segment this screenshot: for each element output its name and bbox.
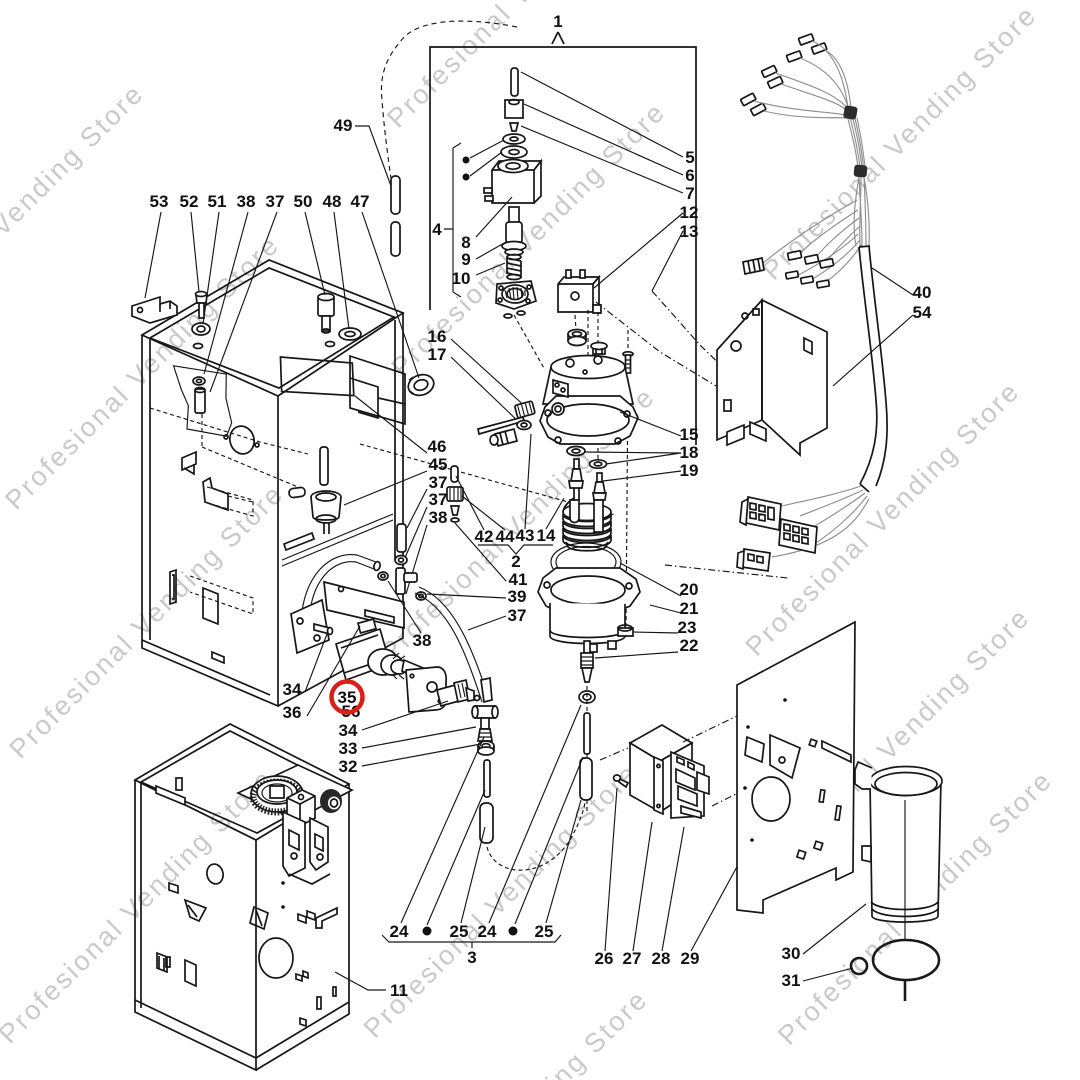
svg-text:36: 36 xyxy=(283,703,302,722)
svg-text:27: 27 xyxy=(623,949,642,968)
svg-text:21: 21 xyxy=(680,599,699,618)
svg-text:38: 38 xyxy=(429,508,448,527)
svg-text:3: 3 xyxy=(467,948,476,967)
svg-text:39: 39 xyxy=(508,587,527,606)
svg-text:25: 25 xyxy=(535,922,554,941)
svg-text:49: 49 xyxy=(334,116,353,135)
svg-text:25: 25 xyxy=(450,922,469,941)
svg-text:29: 29 xyxy=(681,949,700,968)
svg-text:54: 54 xyxy=(913,303,932,322)
svg-text:34: 34 xyxy=(283,680,302,699)
svg-text:6: 6 xyxy=(685,166,694,185)
svg-text:37: 37 xyxy=(266,192,285,211)
svg-text:34: 34 xyxy=(339,721,358,740)
svg-text:45: 45 xyxy=(429,455,448,474)
svg-text:16: 16 xyxy=(428,327,447,346)
svg-text:13: 13 xyxy=(680,222,699,241)
svg-text:40: 40 xyxy=(913,283,932,302)
svg-text:38: 38 xyxy=(413,631,432,650)
svg-text:11: 11 xyxy=(390,981,408,1000)
svg-text:47: 47 xyxy=(351,192,370,211)
svg-text:50: 50 xyxy=(294,192,313,211)
svg-text:33: 33 xyxy=(339,739,358,758)
svg-text:24: 24 xyxy=(478,922,497,941)
svg-text:1: 1 xyxy=(553,12,562,31)
svg-text:10: 10 xyxy=(452,269,471,288)
svg-text:35: 35 xyxy=(338,688,357,707)
svg-text:46: 46 xyxy=(428,437,447,456)
svg-text:15: 15 xyxy=(680,425,699,444)
svg-text:48: 48 xyxy=(323,192,342,211)
svg-text:2: 2 xyxy=(511,552,520,571)
svg-text:5: 5 xyxy=(685,148,694,167)
svg-text:7: 7 xyxy=(685,184,694,203)
svg-text:30: 30 xyxy=(782,944,801,963)
svg-text:51: 51 xyxy=(208,192,227,211)
svg-text:9: 9 xyxy=(461,250,470,269)
svg-text:24: 24 xyxy=(390,922,409,941)
svg-text:44: 44 xyxy=(496,527,515,546)
svg-text:31: 31 xyxy=(782,971,801,990)
svg-text:19: 19 xyxy=(680,461,699,480)
svg-text:12: 12 xyxy=(680,203,699,222)
svg-text:32: 32 xyxy=(339,757,358,776)
svg-text:38: 38 xyxy=(237,192,256,211)
svg-text:4: 4 xyxy=(432,220,442,239)
svg-text:22: 22 xyxy=(680,636,699,655)
svg-text:37: 37 xyxy=(429,490,448,509)
svg-text:28: 28 xyxy=(652,949,671,968)
svg-text:20: 20 xyxy=(680,580,699,599)
svg-text:52: 52 xyxy=(180,192,199,211)
svg-text:18: 18 xyxy=(680,443,699,462)
svg-text:26: 26 xyxy=(595,949,614,968)
svg-text:23: 23 xyxy=(678,618,697,637)
svg-text:53: 53 xyxy=(150,192,169,211)
svg-text:37: 37 xyxy=(508,606,527,625)
svg-text:17: 17 xyxy=(428,345,447,364)
